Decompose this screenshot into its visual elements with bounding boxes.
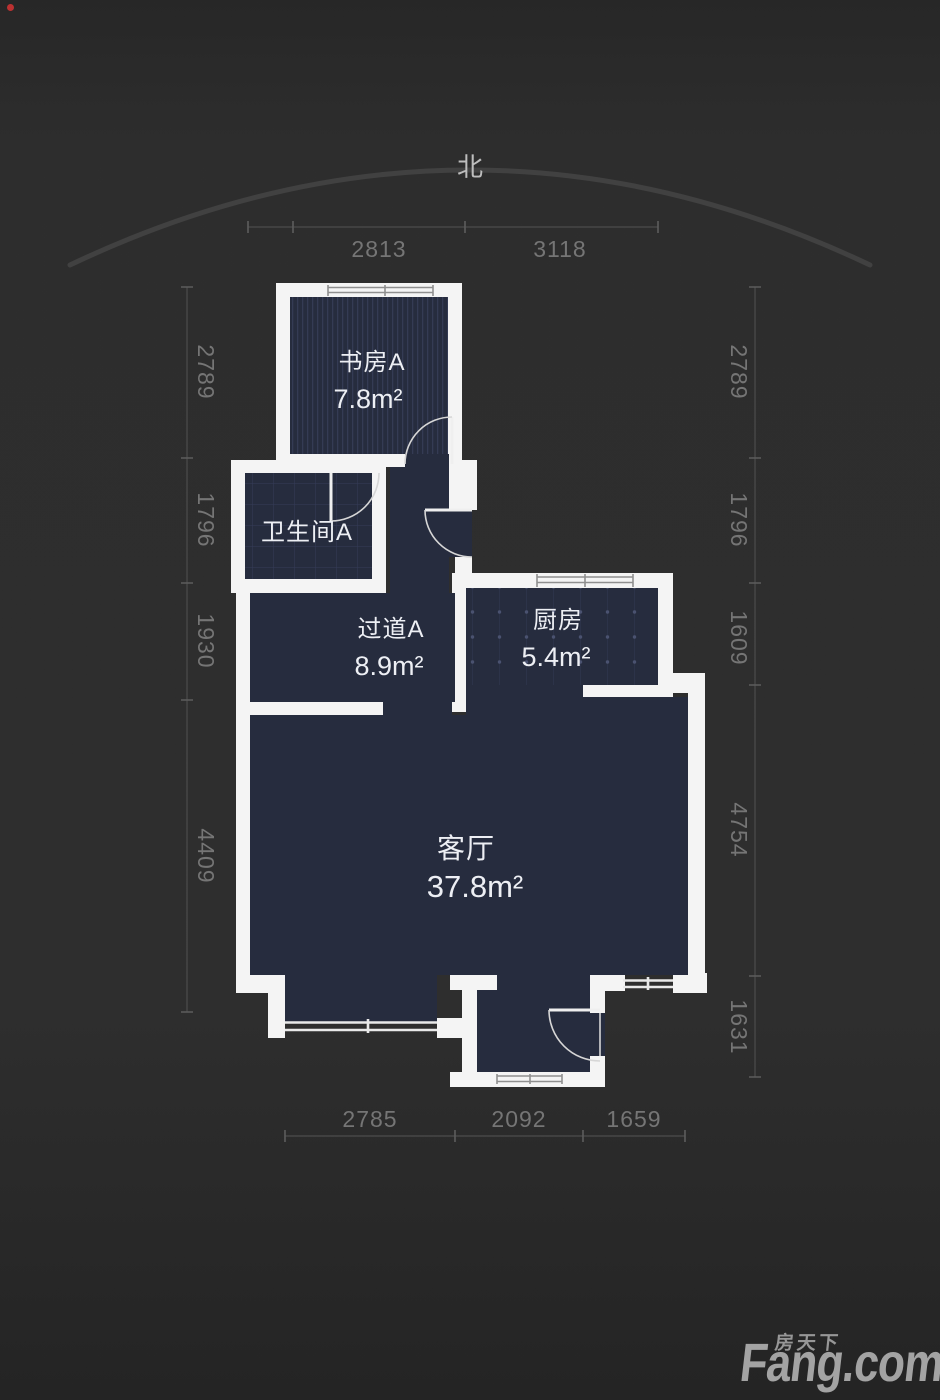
north-label: 北	[457, 152, 483, 182]
hallway-area: 8.9m²	[354, 651, 423, 681]
living-area: 37.8m²	[427, 869, 523, 904]
dim-label: 2789	[193, 344, 219, 399]
dim-label: 1659	[606, 1106, 661, 1132]
dimension-left: 2789 1796 1930 4409	[181, 287, 219, 1012]
dim-label: 2785	[342, 1106, 397, 1132]
dim-label: 4754	[726, 802, 752, 857]
dimension-bottom: 2785 2092 1659	[285, 1106, 685, 1142]
dim-label: 1796	[193, 492, 219, 547]
study-label: 书房A	[338, 349, 405, 376]
kitchen-area: 5.4m²	[521, 642, 590, 672]
dimension-right: 2789 1796 1609 4754 1631	[726, 287, 761, 1077]
dimension-top: 2813 3118	[248, 221, 658, 262]
dim-label: 4409	[193, 828, 219, 883]
north-arc	[70, 170, 870, 265]
floorplan: 北	[0, 0, 940, 1400]
study-area: 7.8m²	[333, 384, 402, 414]
dim-label: 2813	[351, 236, 406, 262]
dim-label: 2092	[491, 1106, 546, 1132]
dim-label: 1796	[726, 492, 752, 547]
kitchen-label: 厨房	[533, 607, 583, 634]
dim-label: 1930	[193, 613, 219, 668]
fang-logo: 房天下 Fang.com	[737, 1320, 937, 1395]
room-interiors	[245, 297, 688, 1072]
right-window-icon	[623, 977, 673, 990]
dim-label: 3118	[533, 236, 586, 262]
living-label: 客厅	[437, 833, 495, 864]
dim-label: 1631	[726, 999, 752, 1054]
bathroom-label: 卫生间A	[261, 519, 353, 546]
dim-label: 2789	[726, 344, 752, 399]
fang-logo-en: Fang.com	[737, 1332, 940, 1394]
hallway-label: 过道A	[357, 616, 424, 643]
dim-label: 1609	[726, 610, 752, 665]
